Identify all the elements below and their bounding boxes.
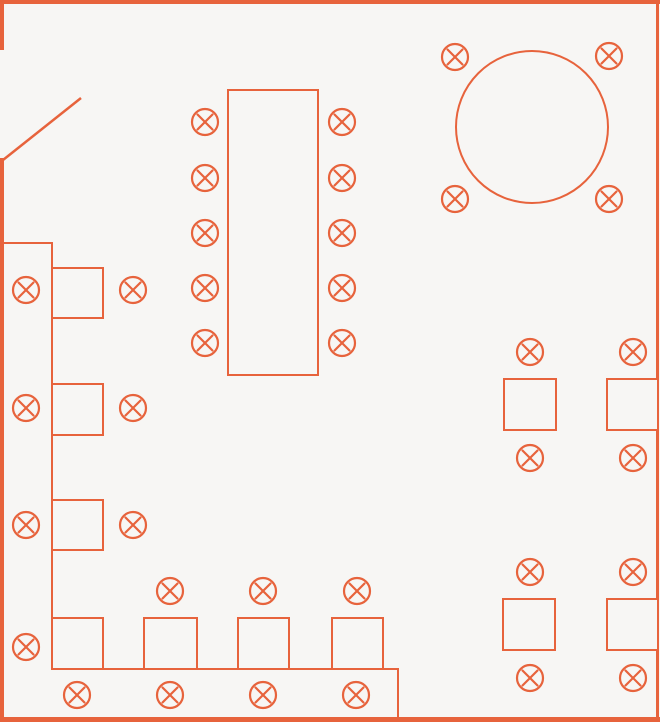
seat-bottom-below-4[interactable] [343,682,369,708]
seat-long-left-5[interactable] [192,330,218,356]
seat-long-left-4[interactable] [192,275,218,301]
seat-right-4-bottom[interactable] [620,665,646,691]
seat-right-1-top[interactable] [517,339,543,365]
wall-inner-left-horizontal [0,242,53,244]
wall-top [0,0,660,4]
seat-right-3-bottom[interactable] [517,665,543,691]
table-round[interactable] [456,51,608,203]
seat-bottom-above-2[interactable] [250,578,276,604]
seat-right-4-top[interactable] [620,559,646,585]
seat-left-outer-1[interactable] [120,277,146,303]
table-right-4[interactable] [607,599,658,650]
seat-right-3-top[interactable] [517,559,543,585]
seat-right-2-top[interactable] [620,339,646,365]
wall-bottom [0,717,660,722]
seat-bottom-below-3[interactable] [250,682,276,708]
seat-long-right-4[interactable] [329,275,355,301]
table-right-1[interactable] [504,379,556,430]
table-right-3[interactable] [503,599,555,650]
table-right-2[interactable] [607,379,658,430]
seat-bottom-below-1[interactable] [64,682,90,708]
seat-long-right-1[interactable] [329,109,355,135]
seat-round-se[interactable] [596,186,622,212]
seat-left-inner-2[interactable] [13,395,39,421]
seat-left-inner-1[interactable] [13,277,39,303]
seat-long-left-2[interactable] [192,165,218,191]
table-bottom-2[interactable] [238,618,289,669]
seat-bottom-above-3[interactable] [344,578,370,604]
table-bottom-1[interactable] [144,618,197,669]
floorplan-svg [0,0,660,722]
seat-right-1-bottom[interactable] [517,445,543,471]
seat-long-right-3[interactable] [329,220,355,246]
seat-round-ne[interactable] [596,43,622,69]
wall-left-upper [0,0,4,50]
seat-long-left-3[interactable] [192,220,218,246]
counter-right-edge [397,668,399,717]
seat-left-inner-3[interactable] [13,512,39,538]
floorplan-canvas [0,0,660,722]
table-bottom-3[interactable] [332,618,383,669]
seat-bottom-above-1[interactable] [157,578,183,604]
seat-left-inner-4[interactable] [13,634,39,660]
seat-round-sw[interactable] [442,186,468,212]
table-left-1[interactable] [52,268,103,318]
table-corner[interactable] [52,618,103,669]
seat-right-2-bottom[interactable] [620,445,646,471]
seat-left-outer-2[interactable] [120,395,146,421]
seat-long-left-1[interactable] [192,109,218,135]
seat-long-right-5[interactable] [329,330,355,356]
seat-left-outer-3[interactable] [120,512,146,538]
seat-round-nw[interactable] [442,44,468,70]
table-left-2[interactable] [52,384,103,435]
seat-bottom-below-2[interactable] [157,682,183,708]
table-left-3[interactable] [52,500,103,550]
table-long[interactable] [228,90,318,375]
seat-long-right-2[interactable] [329,165,355,191]
